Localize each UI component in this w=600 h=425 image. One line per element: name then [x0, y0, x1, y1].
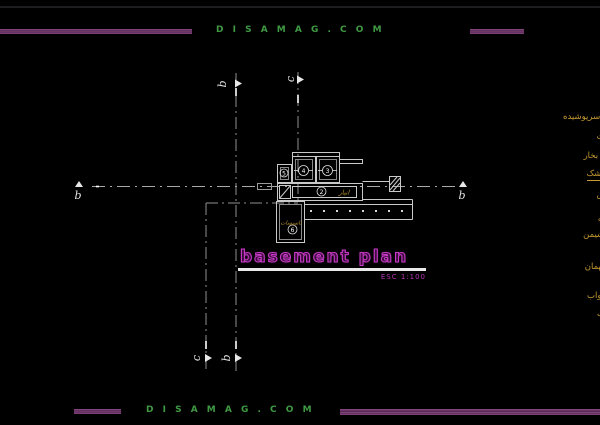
- legend-item: مهمان: [585, 262, 600, 272]
- room-tag-number: 5: [282, 171, 286, 178]
- section-label-b-right: b: [458, 189, 465, 202]
- room-tag-number: 4: [302, 168, 306, 175]
- room-label-storage: انبار: [338, 189, 351, 197]
- arrow-right-icon: [297, 76, 304, 84]
- brand-bar-bottom-right: [340, 409, 600, 415]
- legend-item: خواب: [587, 291, 600, 301]
- room-label-utility: تاسیسات: [280, 220, 303, 227]
- site-watermark-bottom: D I S A M A G . C O M: [146, 405, 315, 415]
- room-tag-number: 2: [320, 189, 324, 196]
- arrow-up-icon: [459, 181, 467, 187]
- section-label-c-bottom: c: [190, 355, 203, 361]
- section-label-b-left: b: [74, 189, 81, 202]
- arrow-right-icon: [235, 80, 242, 88]
- legend-item: نشیمن: [583, 230, 600, 240]
- brand-bar-bottom-left: [74, 409, 121, 414]
- section-arrows: [75, 76, 467, 363]
- plan-drawing: b c c b b b: [0, 0, 600, 425]
- drawing-scale-label: ESC 1:100: [373, 273, 426, 281]
- drawing-title: basement plan: [240, 247, 408, 267]
- line-dash-accents: [96, 88, 298, 349]
- section-label-c-top: c: [284, 76, 297, 82]
- building-walls: [258, 153, 413, 243]
- legend-item: خشک: [587, 169, 600, 181]
- section-label-b-bottom: b: [220, 354, 233, 361]
- column-dots: [310, 210, 403, 212]
- legend-item: س: [597, 190, 600, 200]
- title-underline: [238, 268, 426, 271]
- legend-item: ل بخار: [584, 151, 600, 161]
- cad-canvas: D I S A M A G . C O M: [0, 0, 600, 425]
- legend-item: ر سرپوشیده: [563, 112, 600, 122]
- room-tag-number: 3: [326, 168, 330, 175]
- arrow-right-icon: [205, 354, 212, 362]
- section-label-b-top: b: [216, 80, 229, 87]
- room-tag-number: 6: [291, 227, 295, 234]
- arrow-right-icon: [235, 354, 242, 362]
- legend-item: ات: [597, 132, 600, 142]
- arrow-up-icon: [75, 181, 83, 187]
